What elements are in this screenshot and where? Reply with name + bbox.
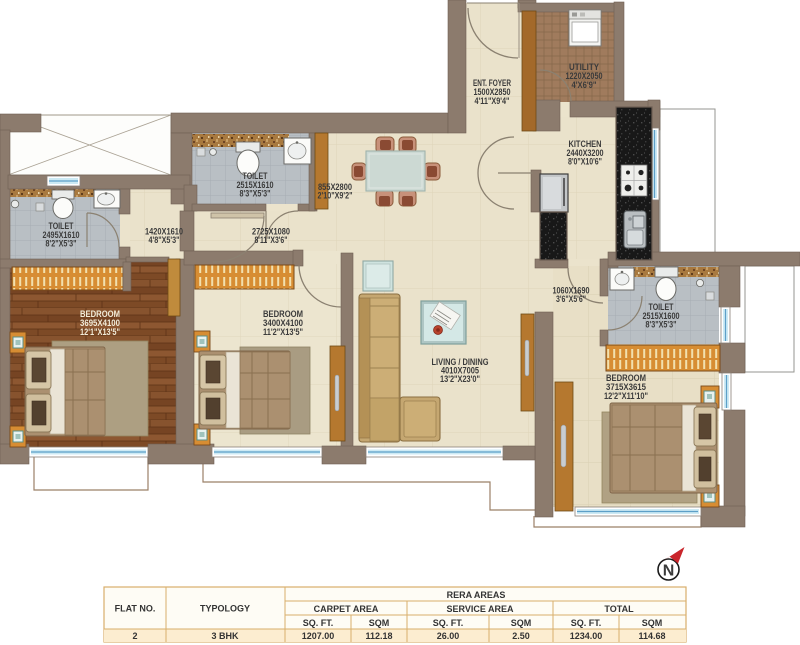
svg-text:RERA AREAS: RERA AREAS — [447, 590, 506, 600]
svg-text:1234.00: 1234.00 — [570, 631, 603, 641]
svg-text:12'1"X13'5": 12'1"X13'5" — [80, 327, 120, 337]
svg-text:SQM: SQM — [369, 618, 390, 628]
svg-text:8'3"X5'3": 8'3"X5'3" — [646, 320, 677, 330]
svg-text:12'2"X11'10": 12'2"X11'10" — [604, 391, 648, 401]
svg-text:SERVICE AREA: SERVICE AREA — [446, 604, 514, 614]
svg-text:8'3"X5'3": 8'3"X5'3" — [240, 189, 271, 199]
svg-text:11'2"X13'5": 11'2"X13'5" — [263, 327, 303, 337]
svg-text:13'2"X23'0": 13'2"X23'0" — [440, 374, 480, 384]
svg-text:SQ. FT.: SQ. FT. — [433, 618, 464, 628]
svg-text:CARPET AREA: CARPET AREA — [314, 604, 379, 614]
svg-text:TYPOLOGY: TYPOLOGY — [200, 604, 250, 614]
svg-text:1207.00: 1207.00 — [302, 631, 335, 641]
svg-text:8'0"X10'6": 8'0"X10'6" — [568, 157, 602, 167]
svg-text:8'11"X3'6": 8'11"X3'6" — [255, 235, 288, 245]
svg-text:2'10"X9'2": 2'10"X9'2" — [318, 191, 353, 201]
svg-text:112.18: 112.18 — [365, 631, 392, 641]
svg-text:2: 2 — [132, 631, 137, 641]
svg-text:2.50: 2.50 — [512, 631, 530, 641]
svg-text:4'X6'9": 4'X6'9" — [572, 80, 597, 90]
svg-text:4'8"X5'3": 4'8"X5'3" — [149, 235, 180, 245]
svg-text:4'11"X9'4": 4'11"X9'4" — [475, 96, 510, 106]
svg-text:3'6"X5'6": 3'6"X5'6" — [556, 294, 586, 304]
svg-text:SQM: SQM — [511, 618, 532, 628]
svg-text:SQ. FT.: SQ. FT. — [303, 618, 334, 628]
svg-text:114.68: 114.68 — [638, 631, 665, 641]
svg-text:3 BHK: 3 BHK — [211, 631, 239, 641]
svg-text:26.00: 26.00 — [437, 631, 460, 641]
svg-text:FLAT NO.: FLAT NO. — [115, 604, 156, 614]
svg-text:SQ. FT.: SQ. FT. — [571, 618, 602, 628]
svg-text:N: N — [663, 563, 675, 580]
svg-text:SQM: SQM — [642, 618, 663, 628]
svg-text:8'2"X5'3": 8'2"X5'3" — [46, 239, 77, 249]
svg-text:TOTAL: TOTAL — [604, 604, 634, 614]
